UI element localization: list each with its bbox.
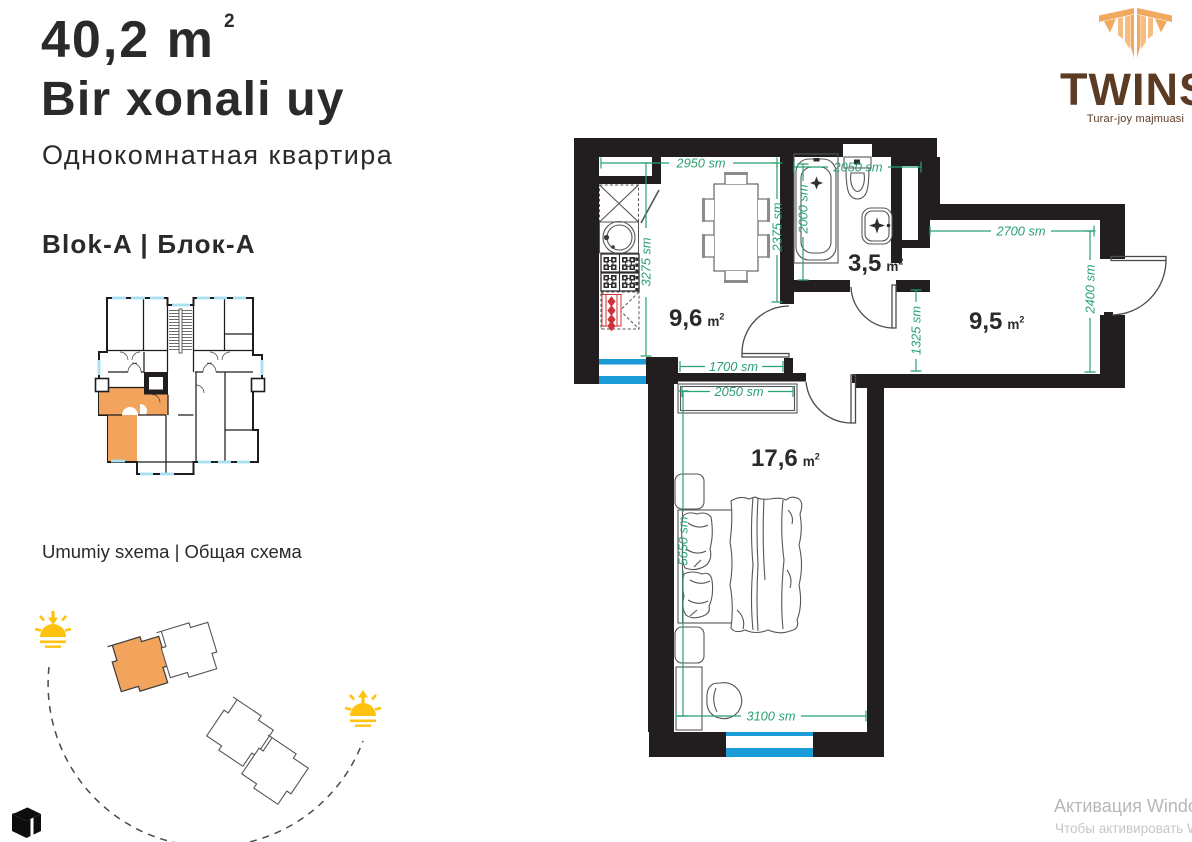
- svg-text:Однокомнатная квартира: Однокомнатная квартира: [42, 140, 393, 170]
- svg-text:Blok-A | Блок-А: Blok-A | Блок-А: [42, 229, 256, 259]
- svg-text:2950 sm: 2950 sm: [675, 156, 725, 171]
- svg-text:40,2 m: 40,2 m: [41, 11, 215, 69]
- svg-text:Чтобы активировать Windows, пе: Чтобы активировать Windows, перей: [1055, 821, 1192, 836]
- svg-text:2400 sm: 2400 sm: [1083, 264, 1098, 314]
- svg-text:3275 sm: 3275 sm: [639, 237, 654, 286]
- svg-text:3100 sm: 3100 sm: [746, 709, 795, 724]
- svg-text:Umumiy sxema | Общая схема: Umumiy sxema | Общая схема: [42, 541, 302, 562]
- svg-text:2050 sm: 2050 sm: [713, 384, 763, 399]
- svg-text:2050 sm: 2050 sm: [832, 160, 882, 175]
- svg-text:1700 sm: 1700 sm: [709, 359, 758, 374]
- svg-text:Turar-joy majmuasi: Turar-joy majmuasi: [1087, 113, 1184, 125]
- svg-text:TWINS: TWINS: [1060, 64, 1192, 115]
- svg-text:Bir xonali uy: Bir xonali uy: [41, 73, 345, 126]
- svg-text:2: 2: [224, 11, 235, 32]
- svg-text:1325 sm: 1325 sm: [909, 306, 924, 355]
- svg-text:2375 sm: 2375 sm: [770, 202, 785, 252]
- svg-text:Активация Windows: Активация Windows: [1054, 796, 1192, 816]
- svg-text:2000 sm: 2000 sm: [796, 184, 811, 234]
- svg-text:5650 sm: 5650 sm: [676, 516, 691, 565]
- svg-text:2700 sm: 2700 sm: [995, 224, 1045, 239]
